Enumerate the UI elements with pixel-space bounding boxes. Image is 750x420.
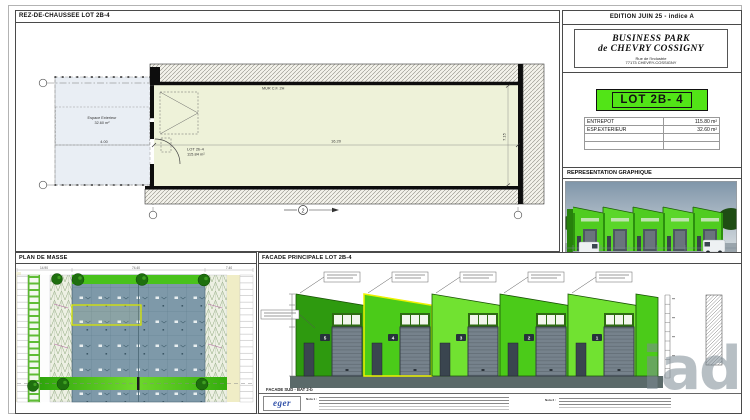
note2-label: Nota 2 : bbox=[545, 398, 556, 402]
exterior-dim: 4.00 bbox=[100, 140, 107, 144]
site-plan-title: PLAN DE MASSE bbox=[16, 253, 256, 264]
facade-unit: 3 bbox=[432, 294, 500, 376]
depth-dim-value: 7.15 bbox=[502, 132, 507, 141]
personnel-door bbox=[304, 343, 314, 376]
site-dim-right: 7.40 bbox=[226, 266, 232, 270]
exterior-area: 32.60 m² bbox=[95, 121, 111, 125]
sectional-door bbox=[400, 327, 430, 376]
drawing-sheet: REZ-DE-CHAUSSEE LOT 2B-4 Espace Exterieu… bbox=[0, 0, 750, 420]
length-dim-value: 16.20 bbox=[331, 139, 342, 144]
sectional-door bbox=[332, 327, 362, 376]
table-row-empty bbox=[585, 134, 720, 142]
axis-symbol: 2 bbox=[284, 206, 339, 215]
agency-watermark: iad bbox=[642, 334, 740, 404]
facade-unit-highlighted: 4 bbox=[364, 294, 432, 376]
base-plinth bbox=[290, 376, 663, 388]
bottom-firewall-hatch bbox=[145, 189, 523, 204]
personnel-door bbox=[440, 343, 450, 376]
site-dim-left: 14.90 bbox=[40, 266, 48, 270]
surface-table: ENTREPOT 115.80 m² ESP.EXTERIEUR 32.60 m… bbox=[584, 117, 720, 150]
personnel-door bbox=[576, 343, 586, 376]
project-name-line1: BUSINESS PARK bbox=[575, 34, 727, 44]
lot-area-label: 115.84 m² bbox=[187, 152, 205, 157]
lot-banner-label: LOT 2B- 4 bbox=[612, 92, 691, 108]
left-height-dimension bbox=[289, 294, 295, 376]
note1-label: Nota 1 : bbox=[306, 397, 317, 401]
axis-symbol-label: 2 bbox=[301, 208, 304, 214]
table-row: ESP.EXTERIEUR 32.60 m² bbox=[585, 126, 720, 134]
wall-fire-rating-label: MUR C.F. 2H bbox=[262, 87, 285, 91]
architect-logo: eger bbox=[264, 397, 300, 409]
exterior-space: Espace Exterieur 32.60 m² 4.00 bbox=[55, 77, 150, 185]
sectional-door bbox=[604, 327, 634, 376]
facade-caption: FACADE SUD - BAT 2-b bbox=[266, 387, 313, 392]
site-dim-center: 74.40 bbox=[132, 266, 140, 270]
grid-bubble bbox=[514, 211, 522, 219]
project-address-line2: 77173 CHEVRY-COSSIGNY bbox=[575, 61, 727, 66]
lot-banner: LOT 2B- 4 bbox=[596, 89, 708, 111]
central-green-road bbox=[17, 377, 253, 390]
table-row-empty bbox=[585, 142, 720, 150]
right-firewall-hatch bbox=[523, 64, 544, 204]
grid-bubble bbox=[149, 211, 157, 219]
sectional-door bbox=[468, 327, 498, 376]
floor-plan-title: REZ-DE-CHAUSSEE LOT 2B-4 bbox=[16, 11, 559, 23]
top-firewall-hatch bbox=[150, 64, 523, 82]
facade-unit: 5 bbox=[296, 294, 364, 376]
table-row: ENTREPOT 115.80 m² bbox=[585, 118, 720, 126]
representation-header: REPRESENTATION GRAPHIQUE bbox=[563, 167, 741, 179]
parking-stalls-left bbox=[17, 275, 28, 402]
parking-stalls-right bbox=[240, 275, 253, 402]
site-dimensions: 14.90 74.40 7.40 bbox=[17, 266, 253, 272]
lot-highlight bbox=[72, 305, 141, 325]
exterior-label: Espace Exterieur bbox=[88, 116, 118, 120]
personnel-door bbox=[508, 343, 518, 376]
floor-plan-panel: REZ-DE-CHAUSSEE LOT 2B-4 Espace Exterieu… bbox=[15, 10, 560, 252]
warehouse-hall bbox=[154, 85, 518, 186]
surface-row-label: ENTREPOT bbox=[585, 118, 664, 126]
surface-row-label: ESP.EXTERIEUR bbox=[585, 126, 664, 134]
surface-row-value: 115.80 m² bbox=[664, 118, 720, 126]
facade-title: FACADE PRINCIPALE LOT 2B-4 bbox=[259, 253, 741, 264]
facade-unit: 2 bbox=[500, 294, 568, 376]
site-plan-panel: PLAN DE MASSE 14.90 74.40 7.40 bbox=[15, 252, 257, 414]
project-title-block: BUSINESS PARK de CHEVRY COSSIGNY Rue de … bbox=[563, 25, 741, 73]
note1-text-lines bbox=[319, 397, 509, 410]
unit-number: 5 bbox=[324, 335, 327, 340]
unit-number: 4 bbox=[392, 335, 395, 340]
unit-number: 3 bbox=[460, 335, 463, 340]
unit-number: 1 bbox=[596, 335, 599, 340]
lot-summary-section: LOT 2B- 4 ENTREPOT 115.80 m² ESP.EXTERIE… bbox=[563, 73, 741, 167]
project-title-box: BUSINESS PARK de CHEVRY COSSIGNY Rue de … bbox=[574, 29, 728, 68]
architect-logo-box: eger bbox=[263, 396, 301, 411]
surface-row-value: 32.60 m² bbox=[664, 126, 720, 134]
edition-header: EDITION JUIN 25 - indice A bbox=[563, 11, 741, 25]
sectional-door bbox=[536, 327, 566, 376]
grid-bubble bbox=[39, 79, 47, 87]
path-strip-right bbox=[227, 275, 240, 402]
facade-unit: 1 bbox=[568, 294, 636, 376]
grid-bubble bbox=[39, 181, 47, 189]
floor-plan-drawing: Espace Exterieur 32.60 m² 4.00 bbox=[16, 23, 557, 251]
personnel-door bbox=[372, 343, 382, 376]
unit-number: 2 bbox=[528, 335, 531, 340]
project-name-line2: de CHEVRY COSSIGNY bbox=[575, 44, 727, 54]
title-block-column: EDITION JUIN 25 - indice A BUSINESS PARK… bbox=[562, 10, 742, 272]
site-plan-drawing: 14.90 74.40 7.40 bbox=[16, 264, 254, 412]
